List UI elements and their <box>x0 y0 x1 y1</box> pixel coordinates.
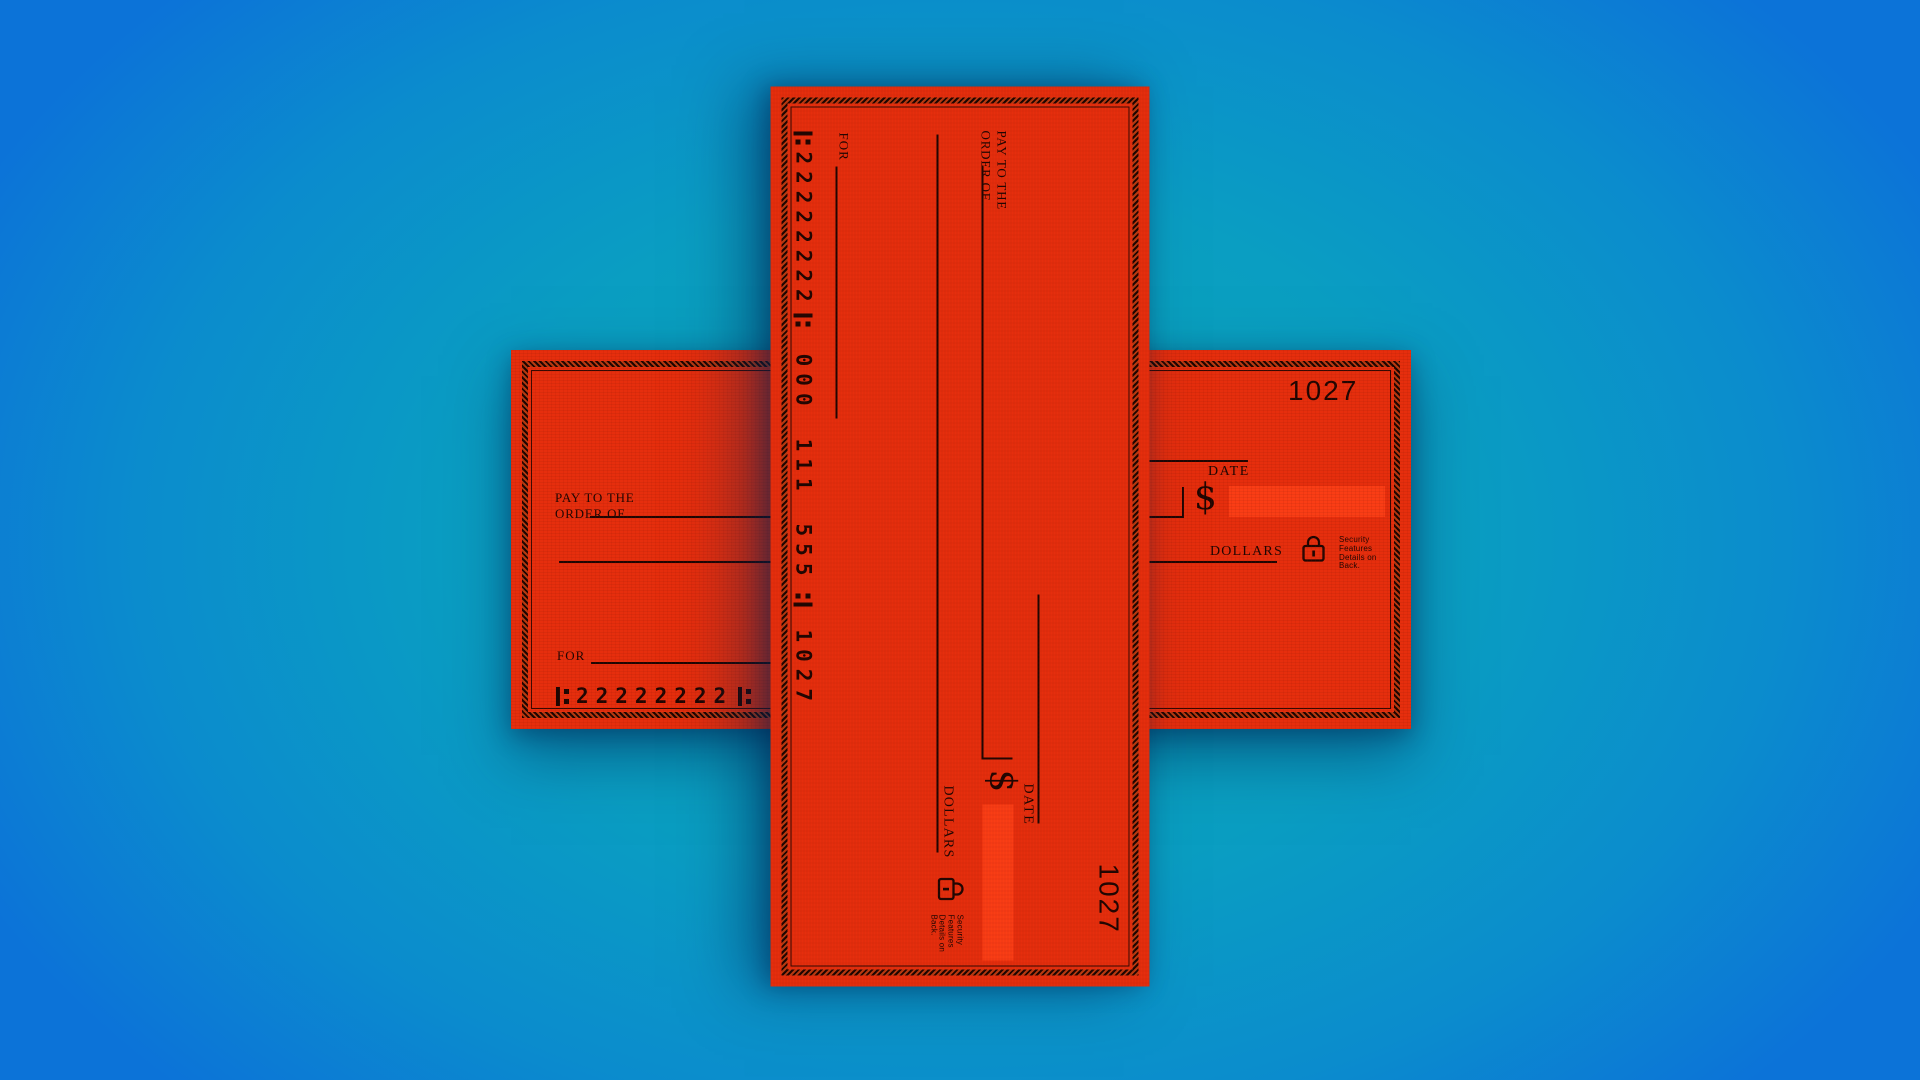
dollar-sign: $ <box>984 770 1020 793</box>
lock-icon <box>938 878 966 901</box>
micr-account-group: 111 <box>792 439 816 498</box>
pay-to-line2: ORDER OF <box>978 131 994 211</box>
micr-line: 22222222 000 111 555 1027 <box>792 131 816 709</box>
micr-onus-icon <box>793 592 814 607</box>
micr-routing-number: 22222222 <box>576 684 733 708</box>
for-label: FOR <box>836 133 852 161</box>
payee-line <box>982 166 984 759</box>
amount-words-line <box>937 135 939 853</box>
check-number: 1027 <box>1093 864 1125 934</box>
dollar-sign: $ <box>1194 480 1217 516</box>
date-line <box>1038 595 1040 824</box>
micr-account-group: 555 <box>792 524 816 583</box>
lock-icon <box>1302 534 1325 562</box>
amount-bracket <box>1169 487 1184 518</box>
for-line <box>836 167 838 419</box>
micr-routing-number: 22222222 <box>792 152 816 309</box>
security-features-note: Security Features Details on Back. <box>928 915 963 959</box>
amount-bracket <box>982 745 1013 760</box>
micr-transit-icon <box>737 686 752 707</box>
pay-to-line1: PAY TO THE <box>994 131 1010 211</box>
pay-to-line2: ORDER OF <box>555 506 635 522</box>
pay-to-line1: PAY TO THE <box>555 490 635 506</box>
illustration-canvas: 1027 DATE PAY TO THE ORDER OF $ DOLLARS … <box>0 0 1920 1080</box>
security-features-note: Security Features Details on Back. <box>1339 536 1383 571</box>
micr-transit-icon <box>793 131 814 146</box>
dollars-label: DOLLARS <box>940 786 956 859</box>
micr-account-group: 000 <box>792 354 816 413</box>
amount-field <box>983 805 1014 961</box>
for-label: FOR <box>557 648 585 664</box>
dollars-label: DOLLARS <box>1210 544 1283 560</box>
check-paper: 1027 DATE PAY TO THE ORDER OF $ DOLLARS … <box>771 87 1150 987</box>
check-number: 1027 <box>1288 375 1358 407</box>
micr-transit-icon <box>555 686 570 707</box>
check-vertical: 1027 DATE PAY TO THE ORDER OF $ DOLLARS … <box>771 87 1150 987</box>
amount-field <box>1229 486 1385 517</box>
inner-border-line <box>791 107 1130 967</box>
micr-check-number: 1027 <box>792 629 816 708</box>
micr-transit-icon <box>793 313 814 328</box>
